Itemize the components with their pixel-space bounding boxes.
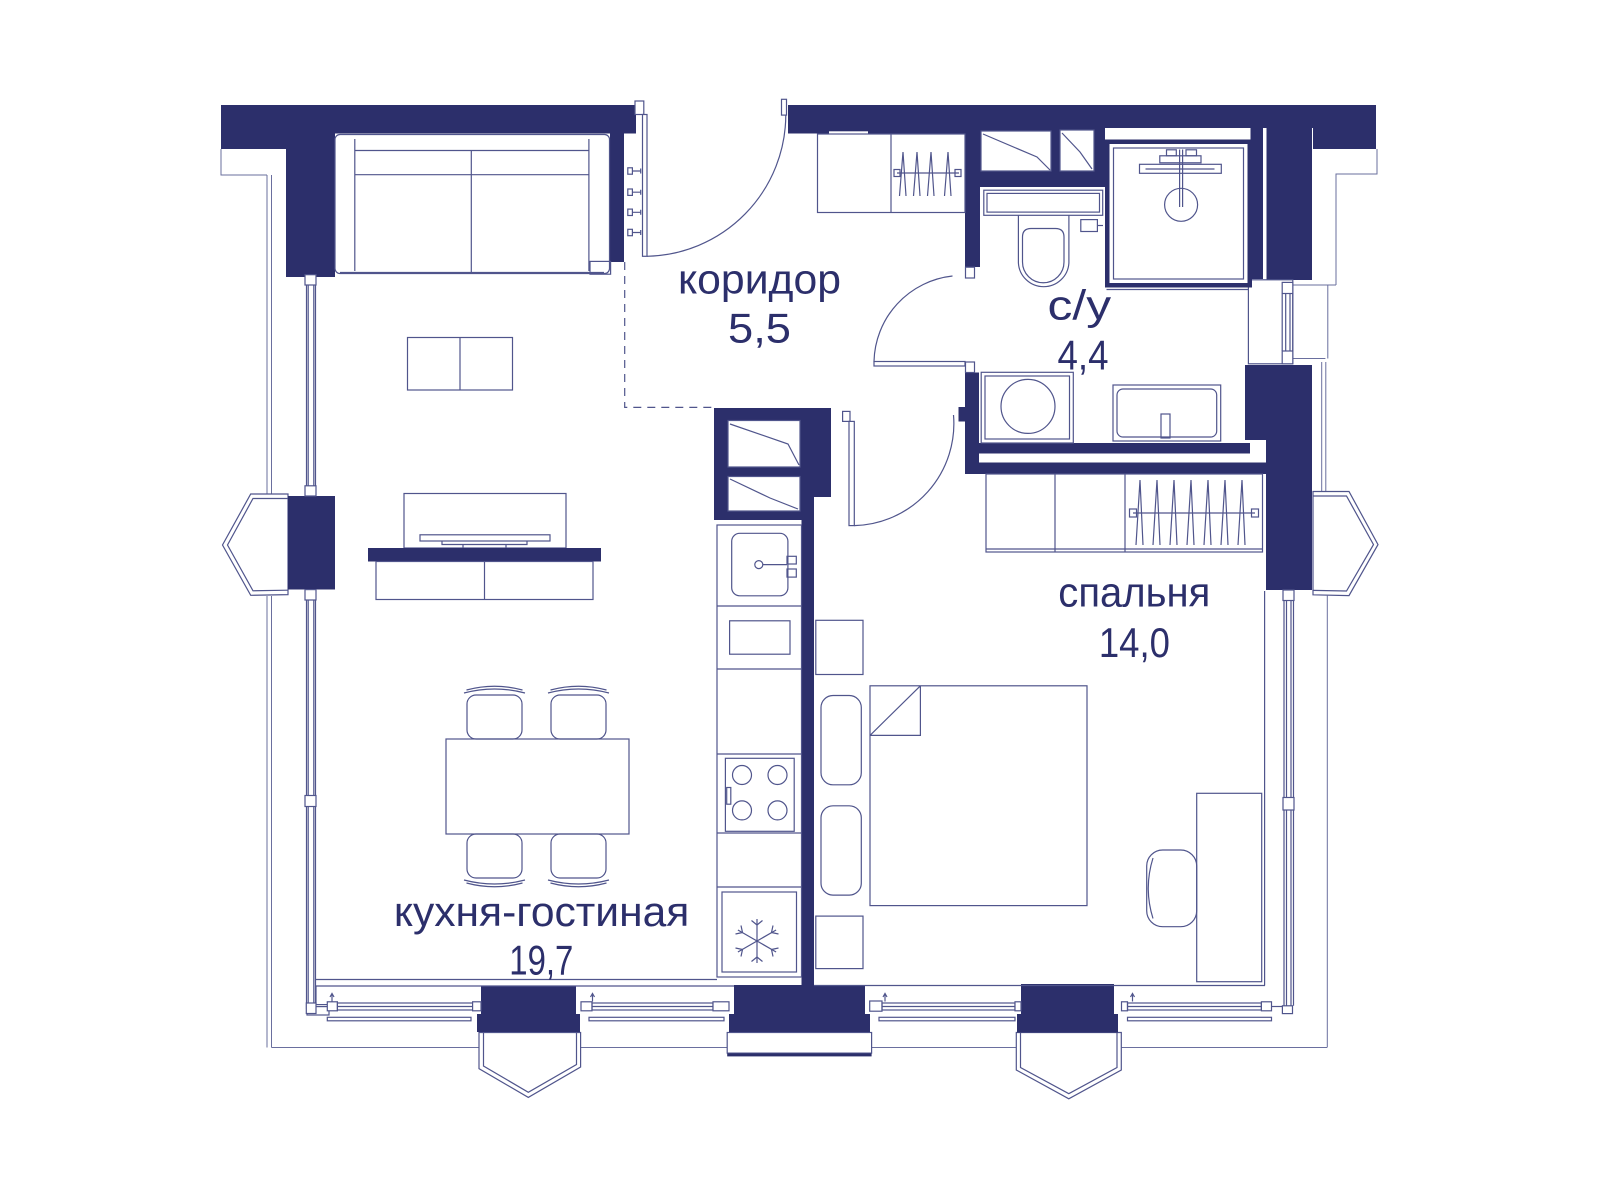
svg-text:кухня-гостиная: кухня-гостиная bbox=[394, 888, 690, 935]
svg-text:с/у: с/у bbox=[1048, 282, 1112, 329]
svg-text:спальня: спальня bbox=[1058, 569, 1210, 616]
svg-text:4,4: 4,4 bbox=[1058, 332, 1109, 379]
svg-text:14,0: 14,0 bbox=[1099, 619, 1170, 666]
svg-text:коридор: коридор bbox=[678, 256, 841, 303]
svg-text:5,5: 5,5 bbox=[728, 305, 791, 352]
svg-text:19,7: 19,7 bbox=[509, 937, 573, 984]
